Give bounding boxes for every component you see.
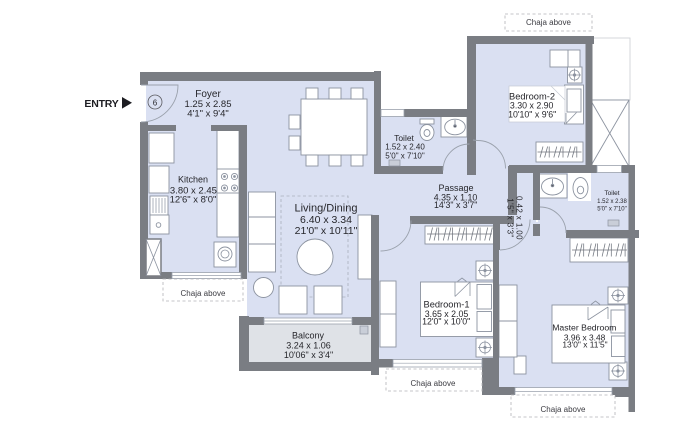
- svg-text:Toilet: Toilet: [394, 133, 414, 143]
- svg-text:5'0" x 7'10": 5'0" x 7'10": [385, 152, 425, 161]
- svg-text:Toilet: Toilet: [604, 190, 619, 197]
- svg-text:12'0" x 10'0": 12'0" x 10'0": [422, 316, 470, 326]
- svg-text:6: 6: [153, 99, 158, 108]
- svg-text:3.24 x 1.06: 3.24 x 1.06: [286, 340, 331, 350]
- svg-text:ENTRY: ENTRY: [84, 98, 118, 110]
- svg-text:Master Bedroom: Master Bedroom: [552, 323, 616, 333]
- svg-text:Balcony: Balcony: [292, 331, 325, 341]
- svg-text:Chaja above: Chaja above: [526, 18, 571, 27]
- svg-text:Chaja above: Chaja above: [541, 405, 586, 414]
- svg-text:10'10" x 9'6": 10'10" x 9'6": [508, 109, 556, 119]
- svg-text:1.52 x 2.40: 1.52 x 2.40: [385, 143, 425, 152]
- svg-text:0.42 x 1.00: 0.42 x 1.00: [515, 196, 524, 240]
- svg-text:14'3" x 3'7": 14'3" x 3'7": [434, 200, 477, 210]
- svg-text:6.40 x 3.34: 6.40 x 3.34: [300, 214, 352, 226]
- svg-text:13'0" x 11'5": 13'0" x 11'5": [562, 340, 607, 350]
- svg-text:1.52 x 2.38: 1.52 x 2.38: [597, 199, 627, 205]
- svg-text:Living/Dining: Living/Dining: [295, 202, 358, 214]
- svg-text:12'6" x 8'0": 12'6" x 8'0": [170, 195, 217, 206]
- svg-text:4'1" x 9'4": 4'1" x 9'4": [187, 109, 229, 120]
- svg-text:Chaja above: Chaja above: [411, 379, 456, 388]
- svg-text:Kitchen: Kitchen: [178, 174, 208, 184]
- svg-text:1'5" x 3'3": 1'5" x 3'3": [506, 198, 515, 237]
- svg-text:21'0" x 10'11": 21'0" x 10'11": [295, 225, 358, 237]
- svg-text:Chaja above: Chaja above: [181, 289, 226, 298]
- svg-text:10'06" x 3'4": 10'06" x 3'4": [284, 350, 333, 360]
- svg-text:5'0" x 7'10": 5'0" x 7'10": [597, 207, 627, 213]
